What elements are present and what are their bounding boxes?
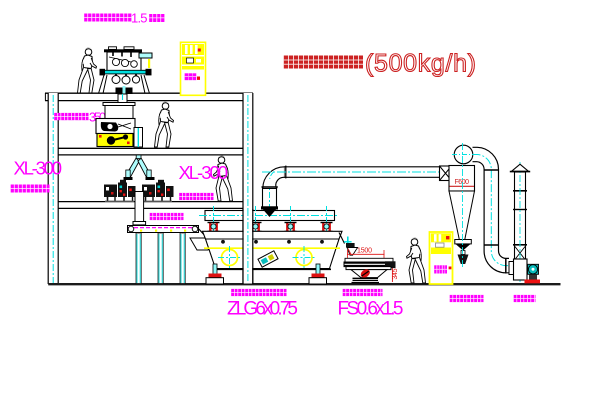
svg-text:1500: 1500 bbox=[357, 248, 372, 255]
svg-text:1.5: 1.5 bbox=[131, 11, 148, 26]
svg-text:XL-300: XL-300 bbox=[14, 158, 63, 179]
svg-text:ZLG6x0.75: ZLG6x0.75 bbox=[227, 299, 298, 320]
svg-text:FS0.6x1.5: FS0.6x1.5 bbox=[338, 299, 404, 320]
svg-text:(500kg/h): (500kg/h) bbox=[365, 50, 476, 78]
svg-text:F600: F600 bbox=[455, 179, 470, 186]
svg-text:345: 345 bbox=[392, 268, 399, 279]
svg-text:XL-300: XL-300 bbox=[179, 162, 229, 183]
